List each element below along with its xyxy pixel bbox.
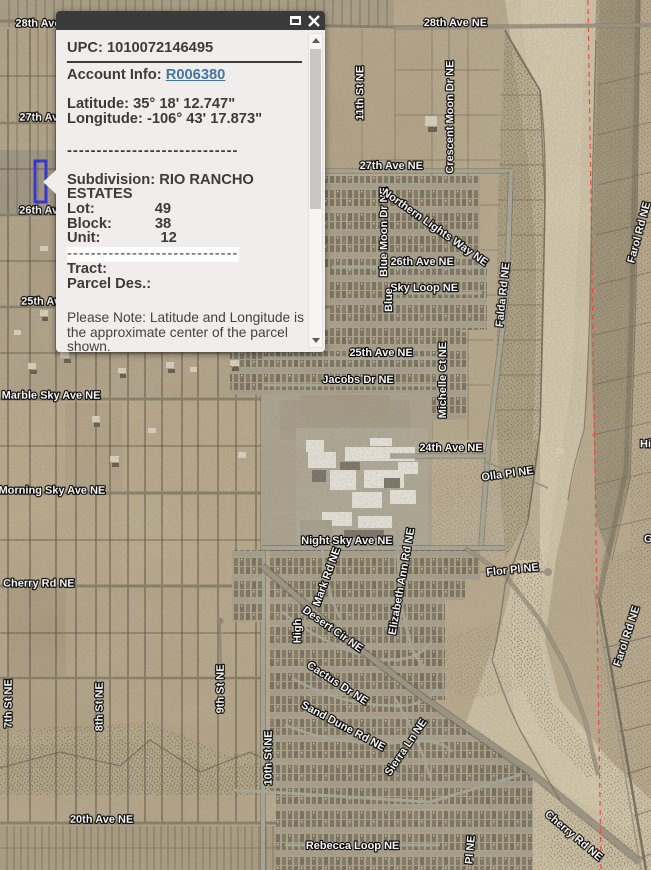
svg-text:7th St NE: 7th St NE xyxy=(3,679,15,728)
svg-text:G: G xyxy=(644,533,651,545)
svg-text:28th Ave NE: 28th Ave NE xyxy=(424,17,487,29)
svg-text:Crescent Moon Dr NE: Crescent Moon Dr NE xyxy=(444,61,456,174)
svg-text:High: High xyxy=(292,618,304,643)
svg-text:Night Sky Ave NE: Night Sky Ave NE xyxy=(301,535,393,547)
svg-text:Rebecca Loop NE: Rebecca Loop NE xyxy=(306,840,400,852)
svg-text:10th St NE: 10th St NE xyxy=(263,730,275,785)
svg-text:Blue: Blue xyxy=(383,288,395,312)
svg-text:Jacobs Dr NE: Jacobs Dr NE xyxy=(322,374,394,386)
svg-text:Pl NE: Pl NE xyxy=(463,835,477,865)
svg-text:Michelle Ct NE: Michelle Ct NE xyxy=(437,342,449,418)
svg-text:28th Ave: 28th Ave xyxy=(15,18,60,30)
svg-text:8th St NE: 8th St NE xyxy=(94,682,106,731)
svg-text:26th Ave NE: 26th Ave NE xyxy=(390,256,453,268)
svg-text:Morning Sky Ave NE: Morning Sky Ave NE xyxy=(0,485,105,497)
svg-text:Marble Sky Ave NE: Marble Sky Ave NE xyxy=(2,390,101,402)
svg-text:9th St NE: 9th St NE xyxy=(215,664,227,713)
svg-text:25th Ave NE: 25th Ave NE xyxy=(349,347,412,359)
svg-text:Hi: Hi xyxy=(640,438,651,450)
svg-text:20th Ave NE: 20th Ave NE xyxy=(70,814,133,826)
svg-text:Cherry Rd NE: Cherry Rd NE xyxy=(3,578,75,590)
svg-text:Sky Loop NE: Sky Loop NE xyxy=(390,282,458,294)
svg-text:24th Ave NE: 24th Ave NE xyxy=(419,442,482,454)
svg-text:27th Ave NE: 27th Ave NE xyxy=(360,160,423,172)
svg-text:11th St NE: 11th St NE xyxy=(354,66,366,120)
